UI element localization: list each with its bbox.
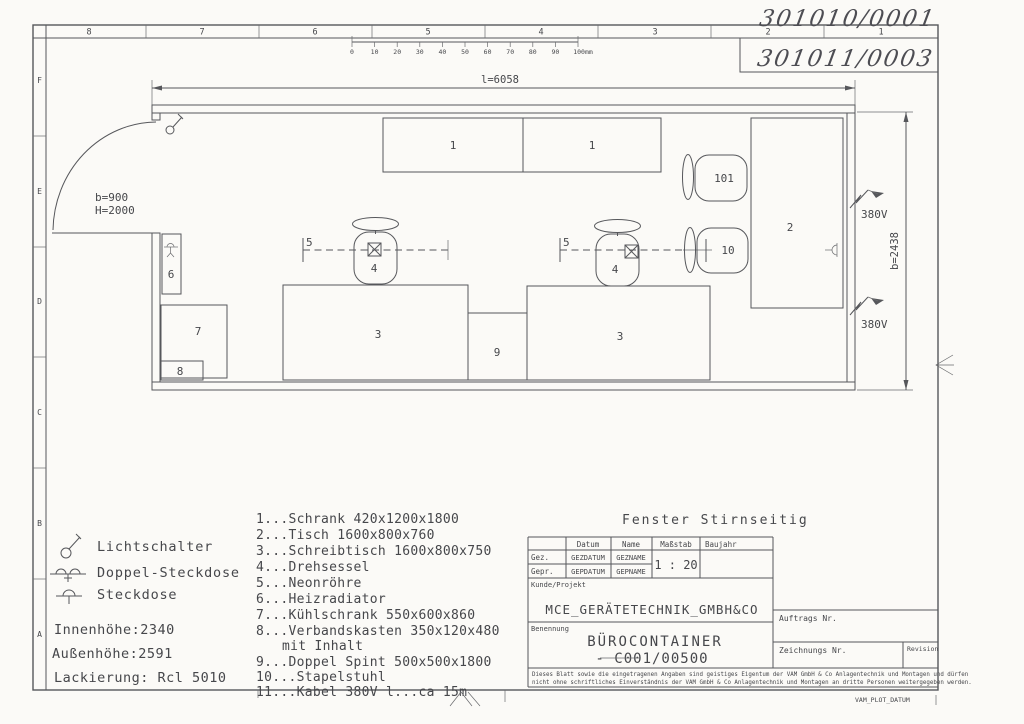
chair-backrest xyxy=(595,220,641,233)
parts-list-item: 4...Drehsessel xyxy=(256,560,370,575)
door: b=900 H=2000 xyxy=(52,122,160,233)
double-socket-icon xyxy=(50,569,86,582)
chair-left-label: 4 xyxy=(371,262,378,275)
ruler-label: 50 xyxy=(461,48,469,56)
desk-left-label: 3 xyxy=(375,328,382,341)
ruler-label: 90 xyxy=(551,48,559,56)
first-aid-label: 8 xyxy=(177,365,184,378)
table-label: 2 xyxy=(787,221,794,234)
company-name: MCE_GERÄTETECHNIK_GMBH&CO xyxy=(545,602,758,617)
wall-socket-icon xyxy=(825,243,837,257)
handwritten-number-lower: 301011/0003 xyxy=(755,45,936,72)
dimension-length: l=6058 xyxy=(152,74,855,112)
handwritten-annotations: 301010/0001 301011/0003 xyxy=(740,5,943,72)
radiator-label: 6 xyxy=(168,268,175,281)
table xyxy=(751,118,843,308)
legend-double-socket-label: Doppel-Steckdose xyxy=(97,565,240,581)
stack-chair-front-label: 10 xyxy=(721,244,734,257)
spec-outer-height: Außenhöhe:2591 xyxy=(52,646,173,662)
radiator-socket-icon xyxy=(164,244,178,257)
grid-letter: B xyxy=(37,519,42,528)
width-dimension-label: b=2438 xyxy=(889,232,901,270)
handwritten-number-upper: 301010/0001 xyxy=(757,5,938,32)
parts-list-item: 3...Schreibtisch 1600x800x750 xyxy=(256,544,492,559)
kunde-label: Kunde/Projekt xyxy=(531,581,586,589)
technical-drawing-sheet: 8 7 6 5 4 3 2 1 F E D C B A 301010/0001 … xyxy=(0,0,1024,724)
disclaimer-line1: Dieses Blatt sowie die eingetragenen Ang… xyxy=(532,672,968,678)
drawing-title: BÜROCONTAINER xyxy=(587,632,723,650)
gepr-name: GEPNAME xyxy=(616,568,646,576)
grid-number: 4 xyxy=(538,28,543,38)
parts-list-item: 6...Heizradiator xyxy=(256,592,386,607)
chair-seat xyxy=(354,232,397,284)
neon-right-label: 5 xyxy=(563,236,570,249)
drawing-code: - C001/00500 xyxy=(595,651,708,667)
parts-list-item-continuation: mit Inhalt xyxy=(282,639,363,654)
dimension-width: b=2438 xyxy=(857,112,913,390)
chair-seat xyxy=(596,234,639,286)
disclaimer-line2: nicht ohne schriftliches Einverständnis … xyxy=(532,680,972,686)
ruler-label: 80 xyxy=(529,48,537,56)
wall-bottom xyxy=(152,382,855,390)
wall-left-upper-stub xyxy=(152,113,160,120)
ruler-label: 20 xyxy=(393,48,401,56)
gepr-datum: GEPDATUM xyxy=(571,568,605,576)
parts-list-item: 1...Schrank 420x1200x1800 xyxy=(256,512,459,527)
gez-name: GEZNAME xyxy=(616,554,646,562)
legend-light-switch-label: Lichtschalter xyxy=(97,539,213,555)
door-height-label: H=2000 xyxy=(95,204,135,217)
gez-datum: GEZDATUM xyxy=(571,554,605,562)
spec-inner-height: Innenhöhe:2340 xyxy=(54,622,175,638)
ruler-label: 100mm xyxy=(573,48,593,56)
gez-label: Gez. xyxy=(531,553,549,562)
voltage-feed-top: 380V xyxy=(850,190,888,221)
legend: Lichtschalter Doppel-Steckdose Steckdose… xyxy=(50,534,240,686)
neon-left-label: 5 xyxy=(306,236,313,249)
voltage-feed-bottom: 380V xyxy=(850,297,888,331)
scale-value: 1 : 20 xyxy=(654,558,697,572)
parts-list-item: 9...Doppel Spint 500x500x1800 xyxy=(256,655,492,670)
grid-number: 8 xyxy=(86,28,91,38)
door-width-label: b=900 xyxy=(95,191,128,204)
scale-ruler: 0 10 20 30 40 50 60 70 80 90 100mm xyxy=(350,36,593,56)
cabinet-left-label: 1 xyxy=(450,139,457,152)
window-note: Fenster Stirnseitig xyxy=(622,513,809,528)
grid-letter: E xyxy=(37,187,42,196)
socket-icon xyxy=(56,590,82,604)
swivel-chair-left: 4 xyxy=(353,218,399,285)
th-massstab: Maßstab xyxy=(660,540,692,549)
locker-label: 9 xyxy=(494,346,501,359)
gepr-label: Gepr. xyxy=(531,567,554,576)
title-block: Datum Name Maßstab Baujahr Gez. GEZDATUM… xyxy=(528,537,972,704)
chair-backrest xyxy=(683,155,694,200)
top-grid-dividers xyxy=(146,25,824,38)
grid-number: 7 xyxy=(199,28,204,38)
chair-right-label: 4 xyxy=(612,263,619,276)
grid-number: 6 xyxy=(312,28,317,38)
ruler-labels: 0 10 20 30 40 50 60 70 80 90 100mm xyxy=(350,48,593,56)
fridge-label: 7 xyxy=(195,325,202,338)
parts-list-item: 7...Kühlschrank 550x600x860 xyxy=(256,608,475,623)
parts-list-item: 10...Stapelstuhl xyxy=(256,670,386,685)
container-walls xyxy=(152,105,855,390)
ruler-label: 10 xyxy=(371,48,379,56)
grid-letter: A xyxy=(37,630,42,639)
floor-plan: l=6058 b=900 H=2000 1 1 2 xyxy=(52,74,913,390)
left-grid-dividers xyxy=(33,136,46,579)
length-dimension-label: l=6058 xyxy=(481,74,519,86)
wall-left-lower xyxy=(152,233,160,382)
grid-number: 5 xyxy=(425,28,430,38)
parts-list-item: 5...Neonröhre xyxy=(256,576,362,591)
legend-socket-label: Steckdose xyxy=(97,587,177,603)
ruler-label: 60 xyxy=(484,48,492,56)
voltage-top-label: 380V xyxy=(861,208,888,221)
parts-list-item: 2...Tisch 1600x800x760 xyxy=(256,528,435,543)
parts-list-item: 11...Kabel 380V l...ca 15m xyxy=(256,685,467,700)
auftrag-label: Auftrags Nr. xyxy=(779,614,837,623)
drawing-canvas: 8 7 6 5 4 3 2 1 F E D C B A 301010/0001 … xyxy=(0,0,1024,724)
stack-chair-back-label: 101 xyxy=(714,172,734,185)
grid-letter: D xyxy=(37,297,42,306)
fridge xyxy=(161,305,227,378)
zeichnung-label: Zeichnungs Nr. xyxy=(779,646,846,655)
revision-label: Revision xyxy=(907,645,938,653)
swivel-chair-right: 4 xyxy=(595,220,641,287)
grid-letter: F xyxy=(37,76,42,85)
th-name: Name xyxy=(622,540,641,549)
ruler-label: 40 xyxy=(438,48,446,56)
wall-top xyxy=(152,105,855,113)
radiator: 6 xyxy=(162,234,181,294)
stack-chair-back: 101 xyxy=(683,155,748,202)
ruler-label: 70 xyxy=(506,48,514,56)
plot-code: VAM_PLOT_DATUM xyxy=(855,696,910,704)
desk-right-label: 3 xyxy=(617,330,624,343)
spec-paint: Lackierung: Rcl 5010 xyxy=(54,670,227,686)
floor-socket-mark xyxy=(368,243,381,256)
ruler-label: 30 xyxy=(416,48,424,56)
wall-right xyxy=(847,113,855,382)
grid-reference-letters: F E D C B A xyxy=(37,76,42,639)
light-switch-icon xyxy=(166,114,183,134)
floor-socket-mark xyxy=(625,245,638,258)
chair-backrest xyxy=(353,218,399,231)
th-baujahr: Baujahr xyxy=(705,540,737,549)
th-datum: Datum xyxy=(577,540,600,549)
parts-list: 1...Schrank 420x1200x1800 2...Tisch 1600… xyxy=(256,512,500,700)
parts-list-item: 8...Verbandskasten 350x120x480 xyxy=(256,624,500,639)
grid-number: 3 xyxy=(652,28,657,38)
voltage-bottom-label: 380V xyxy=(861,318,888,331)
benennung-label: Benennung xyxy=(531,625,569,633)
light-switch-icon xyxy=(61,534,81,558)
grid-letter: C xyxy=(37,408,42,417)
ruler-label: 0 xyxy=(350,48,354,56)
cabinet-right-label: 1 xyxy=(589,139,596,152)
